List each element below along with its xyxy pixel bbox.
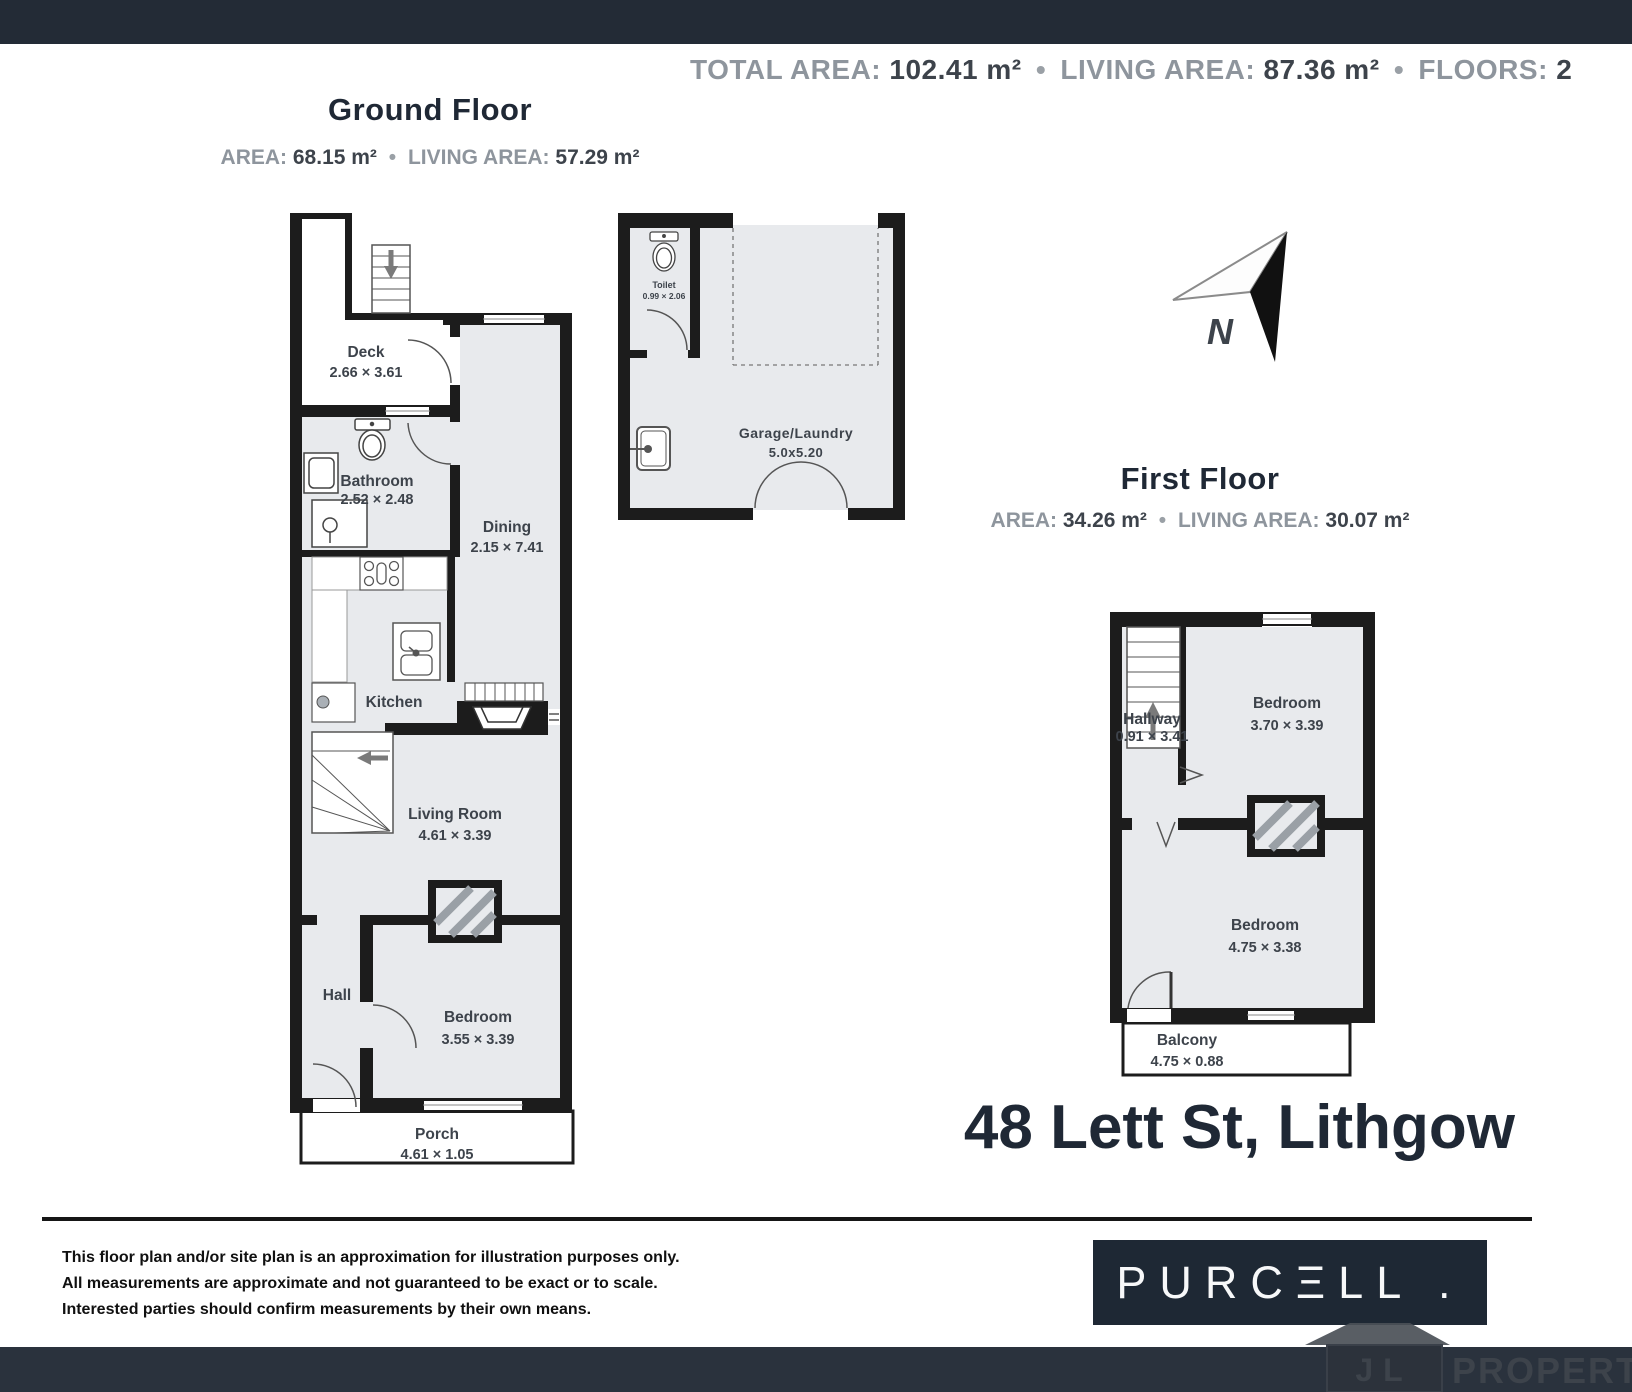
garage-laundry-label: Garage/Laundry — [739, 425, 853, 441]
ff-living-value: 30.07 m² — [1325, 509, 1409, 532]
separator-dot: • — [1388, 54, 1410, 85]
garage-plan: Toilet 0.99 × 2.06 Garage/Laundry 5.0x5.… — [600, 200, 920, 545]
toilet-dims: 0.99 × 2.06 — [643, 291, 686, 301]
first-floor-stats: AREA: 34.26 m² • LIVING AREA: 30.07 m² — [900, 509, 1500, 533]
first-floor-chimney-hatch — [1255, 803, 1317, 849]
bedroom2-label: Bedroom — [1231, 917, 1299, 934]
kitchen-label: Kitchen — [366, 694, 423, 711]
hallway-label: Hallway — [1123, 711, 1181, 728]
ground-floor-plan: Deck 2.66 × 3.61 Bathroom 2.52 × 2.48 Di… — [285, 195, 585, 1175]
separator-dot: • — [1153, 509, 1172, 532]
hall-label: Hall — [323, 987, 351, 1004]
ground-floor-title: Ground Floor — [235, 92, 625, 128]
house-roof-icon — [1305, 1323, 1450, 1345]
toilet-label: Toilet — [652, 280, 675, 290]
total-area-label: TOTAL AREA: — [690, 54, 881, 85]
bedroom2-dims: 4.75 × 3.38 — [1229, 940, 1302, 956]
deck-stairs — [372, 245, 410, 313]
footer-divider — [42, 1217, 1532, 1221]
total-area-value: 102.41 m² — [889, 54, 1021, 85]
separator-dot: • — [1030, 54, 1052, 85]
living-room-label: Living Room — [408, 806, 502, 823]
bedroom-label: Bedroom — [444, 1009, 512, 1026]
ff-living-label: LIVING AREA: — [1178, 509, 1320, 532]
floorplan-page: TOTAL AREA: 102.41 m² • LIVING AREA: 87.… — [0, 0, 1632, 1392]
ground-floor-stats: AREA: 68.15 m² • LIVING AREA: 57.29 m² — [140, 146, 720, 170]
north-compass-icon: N — [1165, 222, 1300, 367]
gf-area-value: 68.15 m² — [293, 146, 377, 169]
balcony-label: Balcony — [1157, 1032, 1218, 1049]
front-door-opening — [313, 1099, 360, 1112]
garage-laundry-dims: 5.0x5.20 — [769, 445, 824, 460]
stove — [360, 557, 403, 590]
disclaimer-line-2: All measurements are approximate and not… — [62, 1271, 680, 1297]
watermark-property-text: PROPERTY — [1452, 1350, 1632, 1391]
chimney-hatch — [436, 888, 494, 935]
bedroom-dims: 3.55 × 3.39 — [442, 1032, 515, 1048]
disclaimer-line-1: This floor plan and/or site plan is an a… — [62, 1245, 680, 1271]
gf-living-label: LIVING AREA: — [408, 146, 550, 169]
bedroom1-label: Bedroom — [1253, 695, 1321, 712]
top-bar — [0, 0, 1632, 44]
disclaimer-line-3: Interested parties should confirm measur… — [62, 1297, 680, 1323]
deck-dims: 2.66 × 3.61 — [330, 365, 403, 381]
balcony-dims: 4.75 × 0.88 — [1151, 1054, 1224, 1070]
laundry-sink — [630, 427, 670, 470]
living-room-dims: 4.61 × 3.39 — [419, 828, 492, 844]
ff-area-value: 34.26 m² — [1063, 509, 1147, 532]
living-area-label: LIVING AREA: — [1060, 54, 1255, 85]
jl-property-watermark: JL PROPERTY — [1290, 1315, 1632, 1392]
deck-label: Deck — [347, 344, 384, 361]
hallway-dims: 0.91 × 3.41 — [1116, 729, 1189, 745]
ff-area-label: AREA: — [991, 509, 1058, 532]
porch-dims: 4.61 × 1.05 — [401, 1147, 474, 1163]
dining-dims: 2.15 × 7.41 — [471, 540, 544, 556]
purcell-logo-text: PURCΞLL . — [1116, 1257, 1463, 1309]
gf-area-label: AREA: — [221, 146, 288, 169]
living-area-value: 87.36 m² — [1263, 54, 1379, 85]
bedroom1-dims: 3.70 × 3.39 — [1251, 718, 1324, 734]
total-area-summary: TOTAL AREA: 102.41 m² • LIVING AREA: 87.… — [690, 54, 1545, 86]
bathroom-sink — [304, 453, 338, 493]
bathroom-label: Bathroom — [340, 473, 413, 490]
porch-label: Porch — [415, 1126, 459, 1143]
compass-n-label: N — [1207, 311, 1234, 352]
kitchen-appliance — [312, 683, 355, 722]
first-floor-title: First Floor — [1000, 461, 1400, 497]
floors-label: FLOORS: — [1418, 54, 1548, 85]
first-floor-plan: Hallway 0.91 × 3.41 Bedroom 3.70 × 3.39 … — [1095, 600, 1385, 1090]
island-sink — [393, 623, 440, 680]
watermark-initials: JL — [1355, 1352, 1412, 1388]
bathroom-dims: 2.52 × 2.48 — [341, 492, 414, 508]
balcony-door-opening — [1127, 1009, 1171, 1022]
winder-stairs — [312, 732, 393, 833]
dining-label: Dining — [483, 519, 531, 536]
separator-dot: • — [383, 146, 402, 169]
purcell-logo: PURCΞLL . — [1093, 1240, 1487, 1325]
floors-value: 2 — [1556, 54, 1572, 85]
gf-living-value: 57.29 m² — [555, 146, 639, 169]
disclaimer: This floor plan and/or site plan is an a… — [62, 1245, 680, 1323]
property-address: 48 Lett St, Lithgow — [964, 1092, 1515, 1163]
